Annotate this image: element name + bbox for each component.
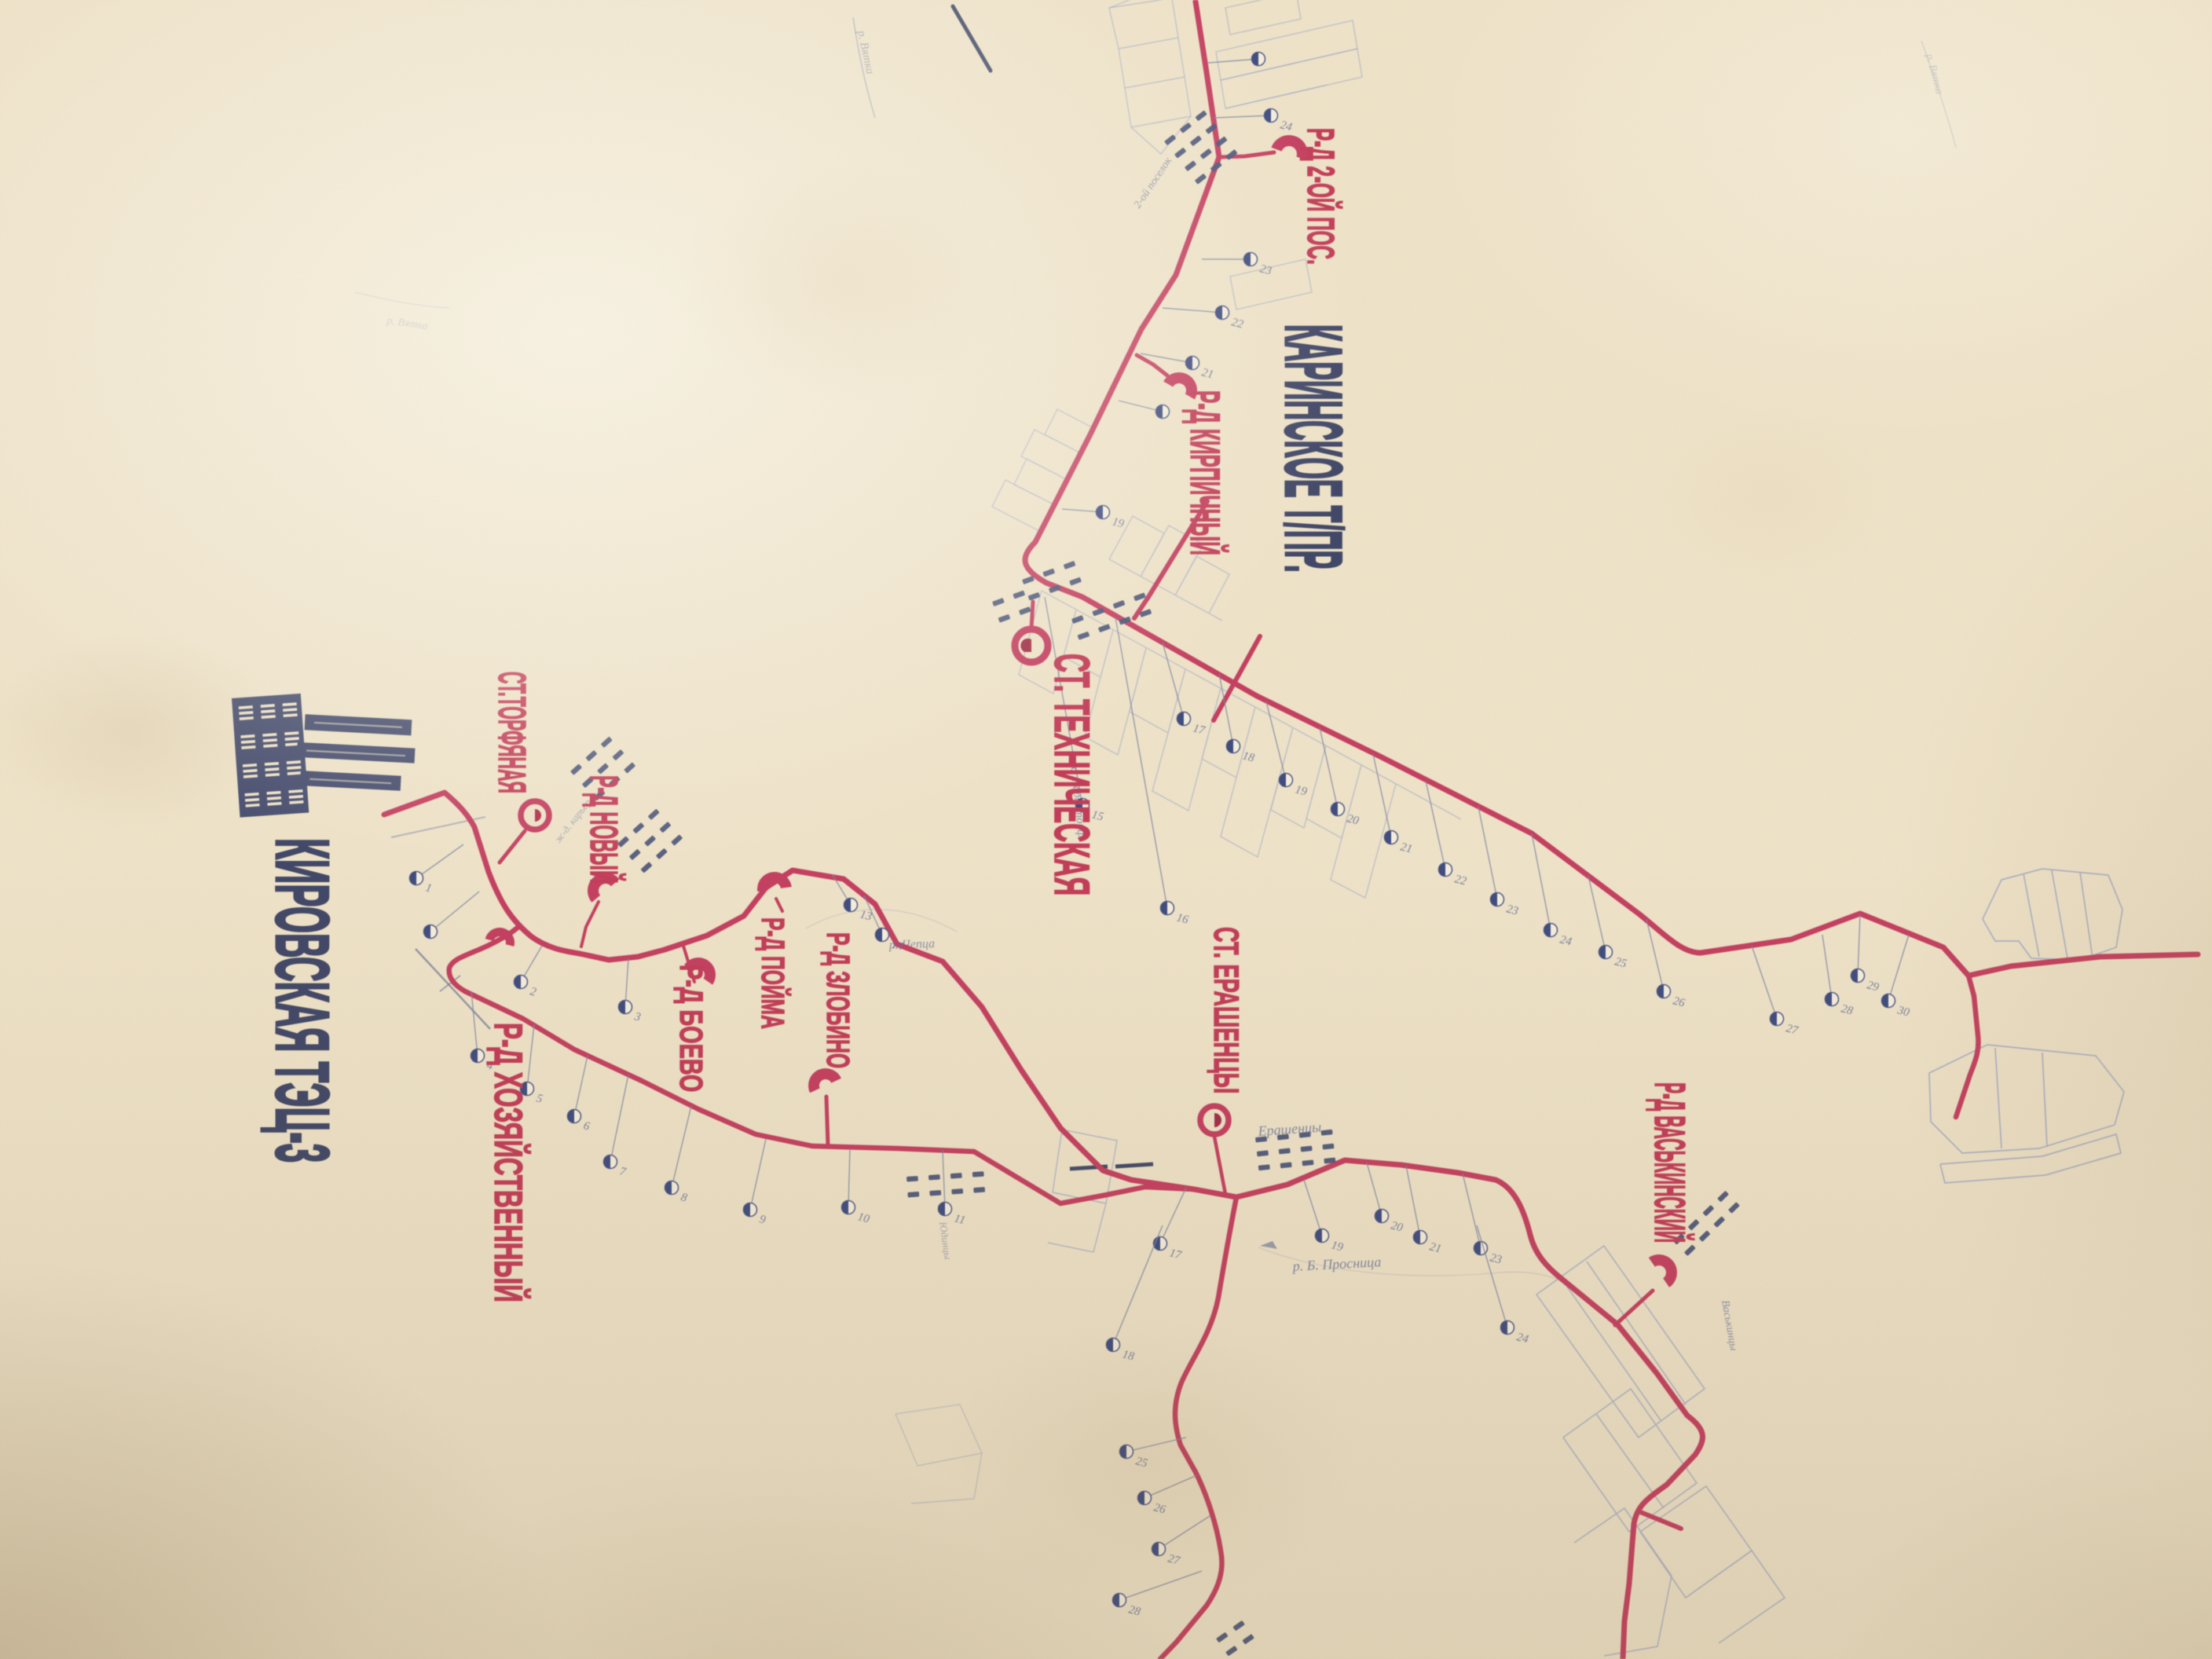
svg-text:Р-Д ВАСЬКИНСКИЙ: Р-Д ВАСЬКИНСКИЙ	[1646, 1082, 1694, 1243]
svg-text:Р-Д НОВЫЙ: Р-Д НОВЫЙ	[581, 775, 627, 884]
svg-text:Р-Д КИРПИЧНЫЙ: Р-Д КИРПИЧНЫЙ	[1181, 390, 1229, 555]
svg-text:Р-Д ХОЗЯЙСТВЕННЫЙ: Р-Д ХОЗЯЙСТВЕННЫЙ	[485, 1023, 531, 1302]
svg-text:КИРОВСКАЯ ТЭЦ-3: КИРОВСКАЯ ТЭЦ-3	[260, 838, 344, 1163]
svg-text:Р-Д БОЕВО: Р-Д БОЕВО	[673, 965, 709, 1092]
svg-text:СТ.ТОРФЯНАЯ: СТ.ТОРФЯНАЯ	[489, 672, 533, 793]
svg-text:Р-Д ЗЛОБИНО: Р-Д ЗЛОБИНО	[820, 932, 856, 1068]
svg-text:Р-Д 2-ОЙ ПОС.: Р-Д 2-ОЙ ПОС.	[1300, 128, 1343, 265]
svg-text:СТ. ТЕХНИЧЕСКАЯ: СТ. ТЕХНИЧЕСКАЯ	[1044, 654, 1099, 895]
svg-text:КАРИНСКОЕ Т/ПР.: КАРИНСКОЕ Т/ПР.	[1268, 324, 1357, 573]
svg-text:Р-Д ПОЙМА: Р-Д ПОЙМА	[755, 917, 791, 1029]
svg-text:СТ. ЕРАШЕНЦЫ: СТ. ЕРАШЕНЦЫ	[1207, 927, 1244, 1093]
